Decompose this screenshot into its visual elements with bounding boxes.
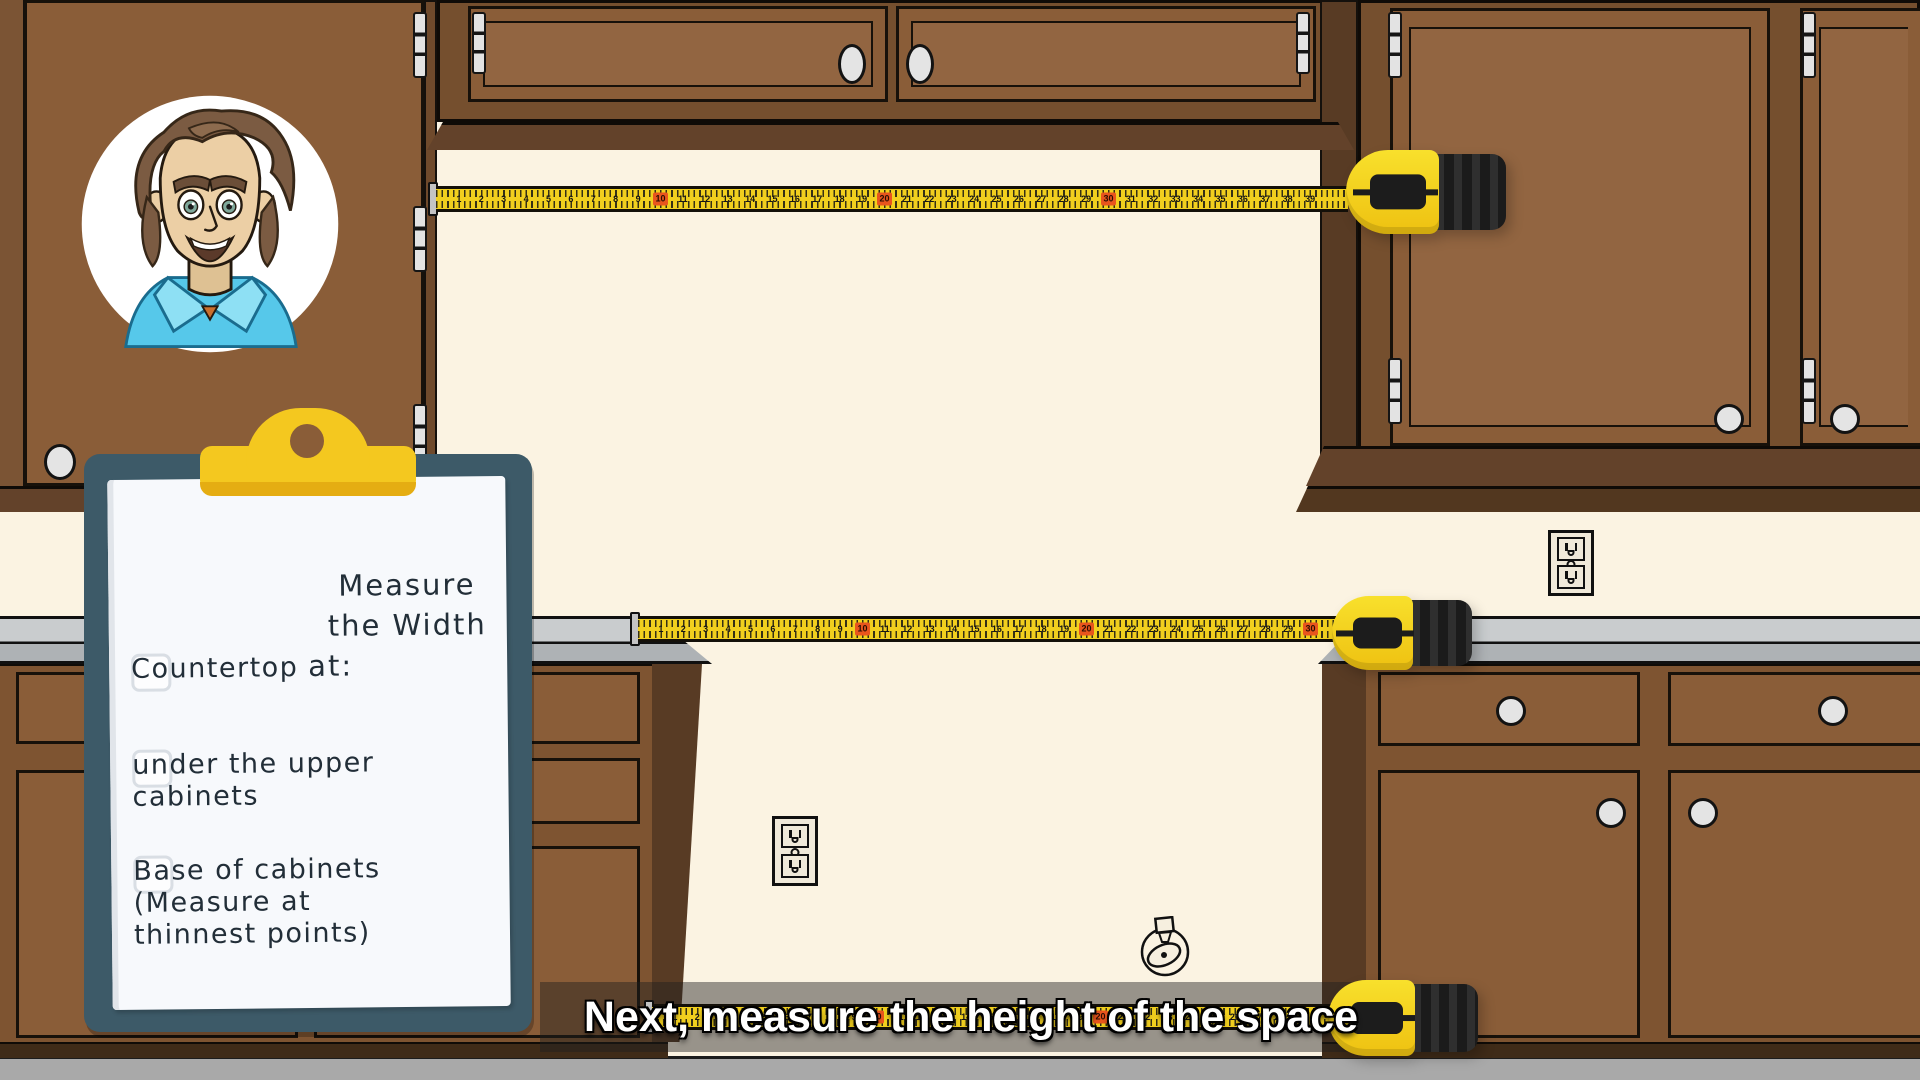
- upper-right-cabinets: [1320, 0, 1920, 515]
- caption-text: Next, measure the height of the space: [540, 982, 1402, 1052]
- cabinet-knob: [44, 444, 76, 480]
- tape-number: 16: [989, 624, 1004, 634]
- cabinet-door: [468, 6, 888, 102]
- checklist-item-label: under the upper cabinets: [132, 747, 453, 814]
- tape-number: 2: [676, 624, 691, 634]
- tape-number: 21: [899, 194, 914, 204]
- presenter-avatar: [76, 90, 344, 358]
- tape-measure-case: [1332, 596, 1472, 670]
- power-outlet-icon: [1548, 530, 1594, 596]
- tape-number: 27: [1236, 624, 1251, 634]
- tape-number: 37: [1258, 194, 1273, 204]
- cabinet-door: [896, 6, 1316, 102]
- kitchen-measuring-scene: Measure the Width at: Countertopunder th…: [0, 0, 1920, 1080]
- hinge: [1802, 358, 1816, 424]
- tape-number: 32: [1146, 194, 1161, 204]
- tape-number: 5: [743, 624, 758, 634]
- tape-number: 30: [1101, 193, 1116, 206]
- measuring-tape-upper: 1234567891011121314151617181920212223242…: [436, 186, 1348, 212]
- tape-number: 35: [1213, 194, 1228, 204]
- power-outlet-icon: [772, 816, 818, 886]
- tape-number: 7: [788, 624, 803, 634]
- tape-number: 33: [1168, 194, 1183, 204]
- cabinet-door: [1800, 8, 1920, 446]
- cabinet-knob: [1714, 404, 1744, 434]
- tape-number: 20: [1079, 623, 1094, 636]
- tape-number: 13: [720, 194, 735, 204]
- clipboard-clip-hole: [290, 424, 324, 458]
- drawer-knob: [1818, 696, 1848, 726]
- tape-number: 17: [1012, 624, 1027, 634]
- tape-number: 36: [1235, 194, 1250, 204]
- tape-number: 16: [787, 194, 802, 204]
- cabinet-knob: [1830, 404, 1860, 434]
- tape-number: 15: [967, 624, 982, 634]
- tape-number: 27: [1034, 194, 1049, 204]
- tape-number: 14: [743, 194, 758, 204]
- tape-number: 3: [698, 624, 713, 634]
- tape-number: 5: [541, 194, 556, 204]
- tape-number: 9: [631, 194, 646, 204]
- tape-number: 12: [900, 624, 915, 634]
- hinge: [1388, 12, 1402, 78]
- tape-number: 6: [765, 624, 780, 634]
- tape-number: 25: [1191, 624, 1206, 634]
- cabinet-knob: [1688, 798, 1718, 828]
- tape-number: 15: [765, 194, 780, 204]
- tape-number: 7: [586, 194, 601, 204]
- tape-number: 10: [855, 623, 870, 636]
- tape-number: 17: [810, 194, 825, 204]
- tape-number: 8: [810, 624, 825, 634]
- tape-number: 9: [833, 624, 848, 634]
- tape-number: 21: [1101, 624, 1116, 634]
- checklist-item-label: Countertop: [131, 651, 451, 686]
- checklist-item-label: Base of cabinets (Measure at thinnest po…: [133, 852, 454, 951]
- hinge: [472, 12, 486, 74]
- clipboard-paper: Measure the Width at: Countertopunder th…: [107, 476, 511, 1010]
- hinge: [1296, 12, 1310, 74]
- tape-number: 26: [1011, 194, 1026, 204]
- hinge: [1388, 358, 1402, 424]
- cabinet-knob: [838, 44, 866, 84]
- floor: [0, 1056, 1920, 1080]
- cabinet-knob: [1596, 798, 1626, 828]
- tape-number: 14: [945, 624, 960, 634]
- tape-number: 11: [675, 194, 690, 204]
- clipboard-clip-lip: [200, 482, 416, 496]
- tape-number: 19: [855, 194, 870, 204]
- upper-center-cabinets: [437, 0, 1354, 152]
- tape-number: 19: [1057, 624, 1072, 634]
- tape-number: 10: [653, 193, 668, 206]
- tape-number: 38: [1280, 194, 1295, 204]
- tape-number: 22: [1124, 624, 1139, 634]
- tape-number: 20: [877, 193, 892, 206]
- tape-case-clip: [1370, 174, 1426, 209]
- tape-number: 4: [721, 624, 736, 634]
- tape-number: 31: [1123, 194, 1138, 204]
- tape-number: 24: [1169, 624, 1184, 634]
- tape-number: 24: [967, 194, 982, 204]
- tape-number: 30: [1303, 623, 1318, 636]
- tape-number: 39: [1303, 194, 1318, 204]
- tape-number: 12: [698, 194, 713, 204]
- tape-number: 28: [1056, 194, 1071, 204]
- hinge: [1802, 12, 1816, 78]
- tape-number: 11: [877, 624, 892, 634]
- gas-valve-icon: [1134, 916, 1194, 978]
- tape-number: 8: [608, 194, 623, 204]
- drawer-front: [1668, 672, 1920, 746]
- tape-number: 3: [496, 194, 511, 204]
- checklist: Countertopunder the upper cabinetsBase o…: [107, 476, 511, 1010]
- tape-number: 6: [563, 194, 578, 204]
- tape-number: 22: [922, 194, 937, 204]
- drawer-knob: [1496, 696, 1526, 726]
- tape-number: 23: [1146, 624, 1161, 634]
- tape-number: 18: [1034, 624, 1049, 634]
- tape-number: 1: [451, 194, 466, 204]
- hinge: [413, 12, 427, 78]
- hinge: [413, 206, 427, 272]
- tape-measure-case: [1346, 150, 1506, 234]
- tape-number: 29: [1281, 624, 1296, 634]
- tape-number: 1: [653, 624, 668, 634]
- cabinet-side-panel: [0, 0, 26, 486]
- tape-number: 28: [1258, 624, 1273, 634]
- tape-number: 25: [989, 194, 1004, 204]
- tape-number: 29: [1079, 194, 1094, 204]
- tape-number: 34: [1191, 194, 1206, 204]
- tape-number: 4: [519, 194, 534, 204]
- tape-number: 2: [474, 194, 489, 204]
- tape-case-clip: [1353, 617, 1402, 648]
- tape-number: 23: [944, 194, 959, 204]
- measuring-tape-countertop: 1234567891011121314151617181920212223242…: [638, 616, 1336, 642]
- tape-number: 26: [1213, 624, 1228, 634]
- tape-number: 18: [832, 194, 847, 204]
- cabinet-knob: [906, 44, 934, 84]
- tape-number: 13: [922, 624, 937, 634]
